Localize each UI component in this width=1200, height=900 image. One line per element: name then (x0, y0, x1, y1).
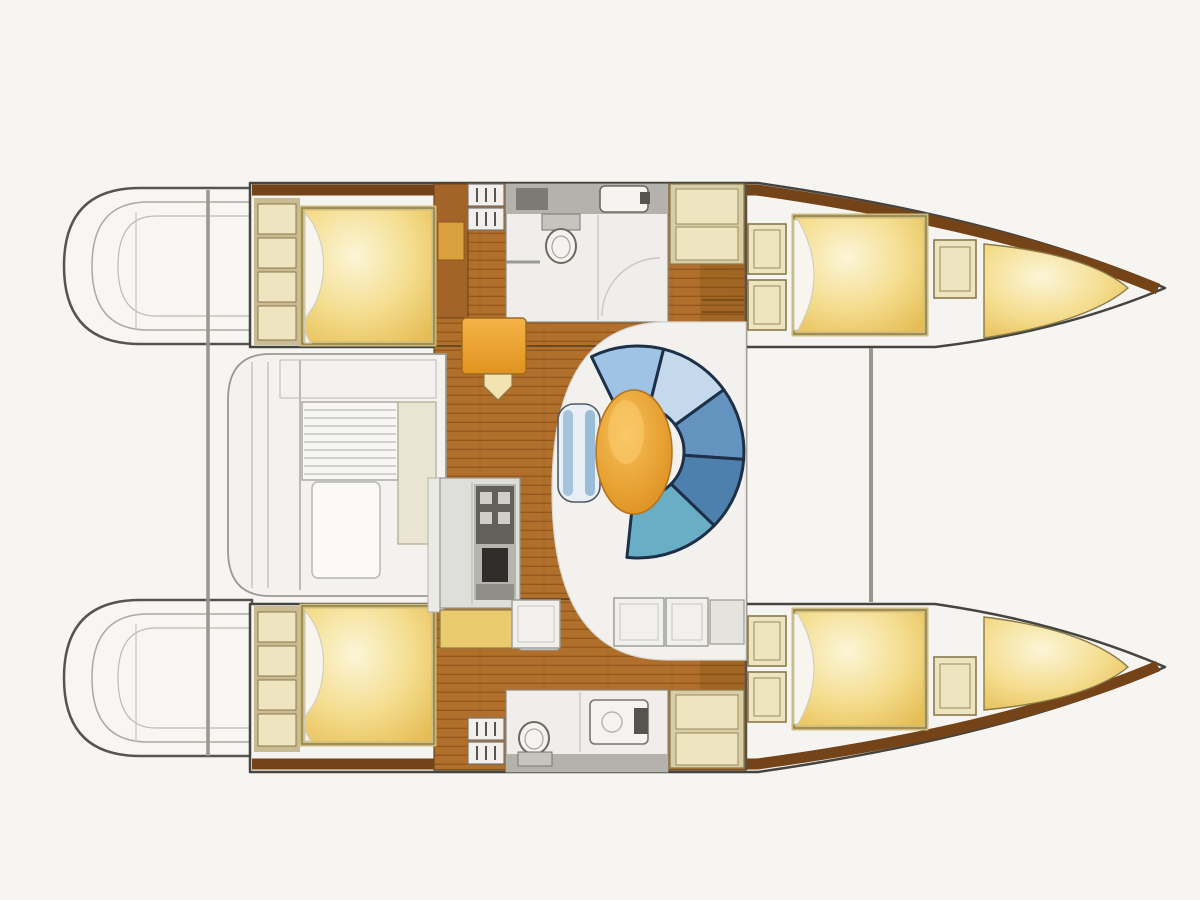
side-bench-cushion (585, 410, 595, 496)
locker-door (676, 733, 738, 765)
burner (498, 492, 510, 504)
burner (480, 512, 492, 524)
port-stern-platform (64, 188, 252, 344)
galley-sink (476, 584, 514, 600)
toilet-tank (518, 752, 552, 766)
forward-head (506, 184, 668, 322)
locker-door (676, 695, 738, 729)
floor-plan-drawing (0, 0, 1200, 900)
locker-door (676, 227, 738, 260)
cockpit-table-pad (312, 482, 380, 578)
cockpit (228, 354, 446, 596)
faucet (640, 192, 650, 204)
cabinet-door (258, 306, 296, 340)
locker (614, 598, 664, 646)
cabinet-door (258, 714, 296, 746)
faucet (634, 708, 648, 734)
chart-seat (462, 318, 526, 374)
oven (482, 548, 508, 582)
cabinet-door (258, 238, 296, 268)
cabinet-door (258, 612, 296, 642)
locker (710, 600, 744, 644)
locker (512, 600, 560, 648)
cabinet-door (258, 272, 296, 302)
side-bench-cushion (563, 410, 573, 496)
starboard-stern-platform (64, 600, 252, 756)
port-aft-cabin (254, 198, 434, 345)
burner (498, 512, 510, 524)
saloon-cabinet-door (438, 222, 464, 260)
cockpit-slatted-bench (302, 402, 398, 480)
cabinet-door (258, 646, 296, 676)
table-highlight (608, 400, 644, 464)
toilet-tank (542, 214, 580, 230)
cabinet-door (258, 680, 296, 710)
catamaran-floor-plan (0, 0, 1200, 900)
forward-lockers (670, 184, 744, 264)
galley-lower-counter (440, 610, 518, 648)
locker-door (676, 189, 738, 224)
starboard-aft-cabin (254, 606, 434, 752)
cabinet-door (258, 204, 296, 234)
aft-head (506, 690, 668, 772)
burner (480, 492, 492, 504)
aft-lockers (670, 690, 744, 768)
counter-fixture (516, 188, 548, 210)
